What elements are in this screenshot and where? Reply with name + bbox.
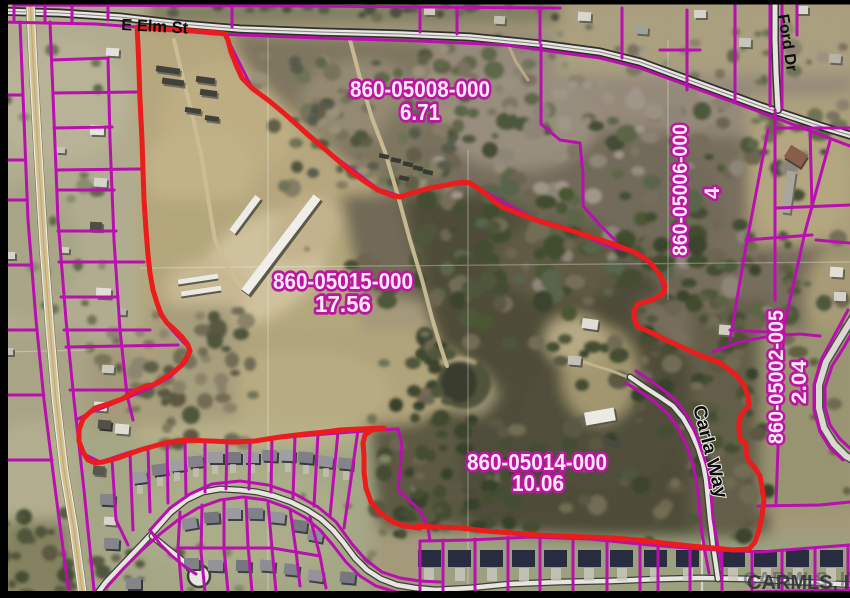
svg-text:860-05002-005: 860-05002-005 [765, 310, 788, 444]
svg-text:CARMLS, INC: CARMLS, INC [747, 572, 850, 594]
svg-text:10.06: 10.06 [512, 470, 564, 496]
svg-text:E Elm St: E Elm St [121, 16, 189, 38]
svg-text:4: 4 [701, 187, 724, 199]
svg-text:17.56: 17.56 [315, 291, 371, 317]
svg-text:6.71: 6.71 [400, 99, 440, 125]
svg-text:860-05006-000: 860-05006-000 [669, 124, 692, 256]
svg-text:2.04: 2.04 [788, 360, 811, 404]
